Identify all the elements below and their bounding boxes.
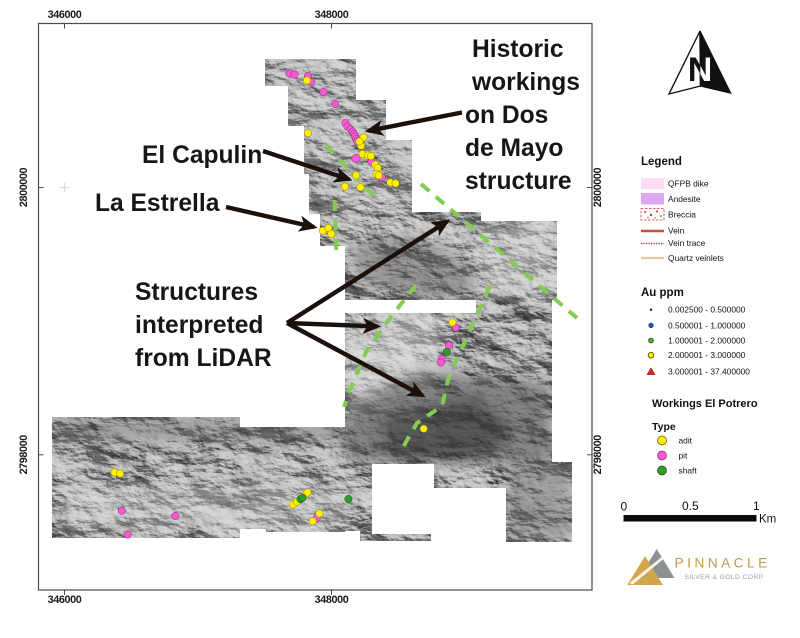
svg-text:346000: 346000: [48, 594, 82, 606]
svg-text:3.000001 - 37.400000: 3.000001 - 37.400000: [668, 366, 750, 376]
svg-text:El Capulin: El Capulin: [142, 142, 262, 169]
svg-text:workings: workings: [471, 69, 580, 96]
svg-text:structure: structure: [465, 168, 572, 195]
svg-text:La Estrella: La Estrella: [95, 190, 220, 217]
svg-text:Vein: Vein: [668, 226, 685, 236]
svg-text:0.5: 0.5: [682, 499, 699, 513]
svg-text:Quartz veinlets: Quartz veinlets: [668, 253, 724, 263]
svg-text:Km: Km: [759, 514, 776, 526]
svg-text:2800000: 2800000: [592, 167, 604, 207]
svg-text:Breccia: Breccia: [668, 209, 696, 219]
svg-text:Legend: Legend: [641, 156, 682, 168]
svg-text:Au ppm: Au ppm: [641, 287, 684, 299]
svg-text:Historic: Historic: [472, 36, 564, 63]
svg-text:0.500001 - 1.000000: 0.500001 - 1.000000: [668, 320, 746, 330]
svg-text:interpreted: interpreted: [135, 312, 263, 339]
svg-text:348000: 348000: [315, 9, 349, 21]
svg-text:2798000: 2798000: [592, 435, 604, 475]
svg-text:from LiDAR: from LiDAR: [135, 345, 272, 372]
svg-text:Structures: Structures: [135, 279, 258, 306]
svg-text:de Mayo: de Mayo: [465, 135, 563, 162]
svg-text:PINNACLE: PINNACLE: [675, 556, 771, 571]
svg-text:on Dos: on Dos: [465, 102, 548, 129]
svg-text:adit: adit: [679, 436, 693, 446]
svg-text:pit: pit: [679, 451, 689, 461]
svg-text:Workings El Potrero: Workings El Potrero: [652, 398, 758, 410]
svg-text:2.000001 - 3.000000: 2.000001 - 3.000000: [668, 350, 746, 360]
svg-text:SILVER & GOLD CORP: SILVER & GOLD CORP: [685, 574, 764, 581]
svg-text:2800000: 2800000: [18, 167, 30, 207]
svg-text:0: 0: [621, 500, 628, 514]
svg-text:Vein trace: Vein trace: [668, 238, 706, 248]
svg-text:1.000001 - 2.000000: 1.000001 - 2.000000: [668, 336, 746, 346]
svg-text:346000: 346000: [48, 9, 82, 21]
svg-text:0.002500 - 0.500000: 0.002500 - 0.500000: [668, 305, 746, 315]
svg-text:1: 1: [753, 499, 760, 513]
svg-text:Andesite: Andesite: [668, 194, 701, 204]
svg-text:Type: Type: [652, 421, 676, 433]
svg-text:2798000: 2798000: [18, 435, 30, 475]
svg-text:shaft: shaft: [679, 466, 698, 476]
svg-text:348000: 348000: [315, 594, 349, 606]
svg-text:QFPB dike: QFPB dike: [668, 179, 709, 189]
